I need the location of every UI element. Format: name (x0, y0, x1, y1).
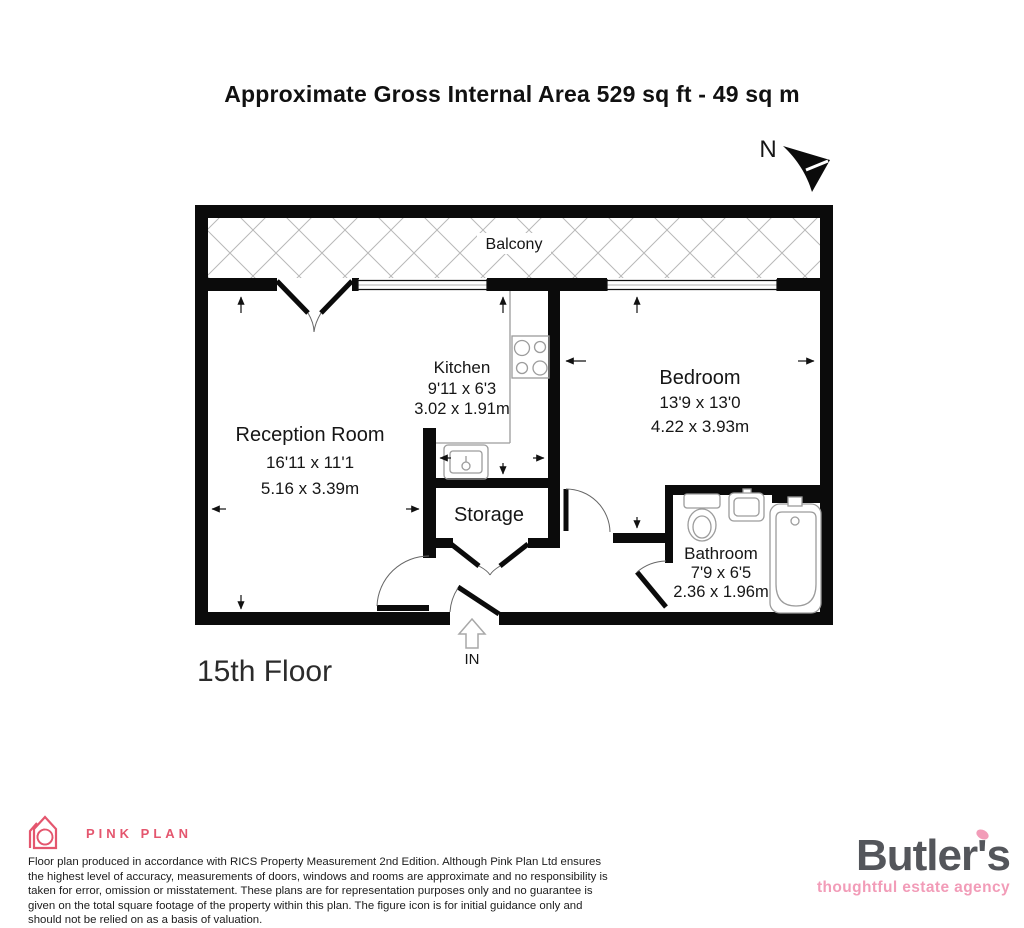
bathroom-name: Bathroom (684, 544, 758, 563)
butlers-brand: Butler's (856, 834, 1010, 878)
basin-icon (729, 489, 764, 521)
balcony-label: Balcony (486, 236, 543, 253)
reception-imperial: 16'11 x 11'1 (266, 453, 354, 472)
bathtub-icon (770, 497, 821, 613)
entrance-label: IN (465, 651, 480, 668)
north-arrow-icon: N (759, 136, 830, 192)
reception-name: Reception Room (236, 424, 385, 446)
floorplan-drawing: N Balcony (0, 0, 1024, 928)
butlers-logo: Butler's thoughtful estate agency (817, 834, 1010, 897)
entrance-arrow-icon (459, 619, 485, 648)
pink-plan-logo: PINK PLAN (24, 808, 284, 852)
bathroom-imperial: 7'9 x 6'5 (691, 564, 751, 582)
pink-plan-brand: PINK PLAN (86, 826, 192, 841)
sink-icon (444, 445, 488, 479)
entrance-marker: IN (459, 619, 485, 668)
reception-metric: 5.16 x 3.39m (261, 479, 359, 498)
kitchen-imperial: 9'11 x 6'3 (428, 380, 496, 398)
bedroom-name: Bedroom (659, 367, 740, 389)
floor-label: 15th Floor (197, 655, 332, 689)
north-label: N (759, 136, 776, 163)
balcony-area: Balcony (208, 218, 820, 278)
floorplan-page: Approximate Gross Internal Area 529 sq f… (0, 0, 1024, 928)
bedroom-metric: 4.22 x 3.93m (651, 417, 749, 436)
stove-icon (512, 336, 549, 378)
footer: PINK PLAN Floor plan produced in accorda… (0, 800, 1024, 928)
butlers-tagline: thoughtful estate agency (817, 879, 1010, 897)
bathroom-metric: 2.36 x 1.96m (673, 583, 768, 601)
kitchen-metric: 3.02 x 1.91m (414, 400, 509, 418)
storage-name: Storage (454, 504, 524, 526)
pink-plan-house-icon (24, 808, 84, 852)
bedroom-imperial: 13'9 x 13'0 (659, 393, 740, 412)
disclaimer-text: Floor plan produced in accordance with R… (28, 855, 616, 928)
toilet-icon (684, 494, 720, 541)
door-leaves (277, 281, 666, 614)
kitchen-name: Kitchen (434, 358, 491, 377)
